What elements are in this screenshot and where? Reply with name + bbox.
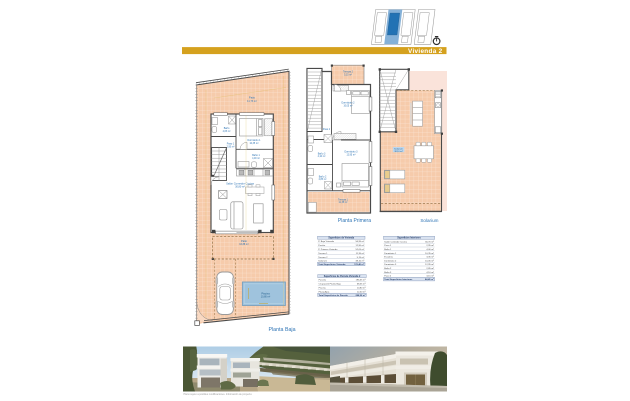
svg-text:Paso 2: Paso 2 — [323, 129, 331, 131]
svg-text:Paso 1: Paso 1 — [384, 245, 392, 247]
svg-text:12,95 m²: 12,95 m² — [346, 153, 355, 156]
svg-text:Porche: Porche — [318, 244, 326, 247]
svg-text:P. Primera Vivienda: P. Primera Vivienda — [318, 248, 338, 251]
svg-text:Parcela: Parcela — [319, 279, 327, 282]
svg-text:4,00 m²: 4,00 m² — [252, 157, 260, 160]
svg-text:68,55 m²: 68,55 m² — [357, 283, 366, 286]
svg-text:10,80 m²: 10,80 m² — [357, 287, 366, 290]
svg-text:10,05 m²: 10,05 m² — [425, 259, 434, 262]
svg-text:Total Superficies Interiores: Total Superficies Interiores — [384, 278, 413, 281]
svg-text:30,70 m²: 30,70 m² — [425, 240, 434, 243]
svg-text:Piscina: Piscina — [319, 288, 327, 290]
svg-text:84,45 m²: 84,45 m² — [425, 278, 434, 281]
svg-text:Superficies Interiores: Superficies Interiores — [397, 237, 421, 240]
svg-text:Dormitorio 3: Dormitorio 3 — [384, 263, 397, 266]
svg-text:Total Superficies de Parcela: Total Superficies de Parcela — [319, 294, 349, 297]
svg-text:3,35 m²: 3,35 m² — [426, 256, 434, 259]
svg-text:Solarium: Solarium — [420, 218, 438, 223]
svg-text:10,35 m²: 10,35 m² — [425, 252, 434, 255]
svg-text:56,95 m²: 56,95 m² — [356, 240, 365, 243]
svg-text:Baño: Baño — [224, 127, 230, 130]
svg-text:4,10 m²: 4,10 m² — [318, 155, 326, 158]
svg-text:Baño 2: Baño 2 — [319, 175, 327, 178]
svg-text:Terraza 1: Terraza 1 — [318, 252, 328, 255]
svg-text:4,05 m²: 4,05 m² — [223, 130, 231, 133]
svg-text:2,85 m²: 2,85 m² — [426, 267, 434, 270]
svg-text:Planta Baja: Planta Baja — [268, 327, 295, 333]
svg-text:10,35 m²: 10,35 m² — [249, 142, 258, 145]
svg-text:Escalera: Escalera — [384, 256, 393, 259]
svg-text:5,15 m²: 5,15 m² — [357, 256, 365, 259]
svg-text:Terraza 2: Terraza 2 — [343, 71, 354, 74]
svg-text:52,05 m²: 52,05 m² — [356, 248, 365, 251]
svg-text:Planta Primera: Planta Primera — [338, 218, 371, 224]
svg-text:3,15 m²: 3,15 m² — [426, 275, 434, 278]
svg-text:Paso 1: Paso 1 — [227, 143, 235, 146]
svg-text:Superficies de Parcela Viviend: Superficies de Parcela Vivienda 2 — [324, 276, 361, 278]
svg-text:11,35 m²: 11,35 m² — [356, 252, 365, 255]
svg-text:Terraza 2: Terraza 2 — [318, 256, 328, 259]
svg-text:Baño 3: Baño 3 — [384, 271, 392, 274]
svg-text:12,90 m²: 12,90 m² — [356, 244, 365, 247]
svg-text:16,88 m²: 16,88 m² — [239, 243, 249, 246]
svg-text:Ocupación Planta Baja: Ocupación Planta Baja — [319, 283, 342, 286]
svg-text:Dormitorio 3: Dormitorio 3 — [344, 151, 358, 154]
svg-text:38,10 m²: 38,10 m² — [394, 150, 403, 153]
svg-text:176,40 m²: 176,40 m² — [354, 263, 364, 266]
svg-text:Dormitorio 1: Dormitorio 1 — [384, 252, 397, 255]
svg-text:Terraza 1: Terraza 1 — [338, 198, 349, 201]
svg-text:Vivienda 2: Vivienda 2 — [408, 48, 443, 55]
svg-text:10,80 m²: 10,80 m² — [261, 296, 271, 299]
svg-text:Baño 1: Baño 1 — [384, 248, 392, 251]
svg-text:4,10 m²: 4,10 m² — [426, 271, 434, 274]
svg-text:Superficies de Vivienda: Superficies de Vivienda — [328, 238, 354, 240]
svg-text:4,00 m²: 4,00 m² — [426, 248, 434, 251]
svg-text:30,80 m²: 30,80 m² — [235, 186, 245, 189]
svg-text:5,15 m²: 5,15 m² — [344, 73, 352, 76]
svg-text:2,85 m²: 2,85 m² — [319, 178, 327, 181]
svg-text:196,35 m²: 196,35 m² — [356, 279, 366, 282]
svg-text:288,20 m²: 288,20 m² — [356, 294, 366, 297]
svg-text:12,50 m²: 12,50 m² — [357, 290, 366, 293]
svg-text:Salón Comedor Cocina: Salón Comedor Cocina — [384, 240, 407, 243]
svg-text:11,73 m²: 11,73 m² — [247, 100, 257, 103]
svg-text:Baño 1: Baño 1 — [252, 154, 260, 157]
svg-text:2,95 m²: 2,95 m² — [227, 145, 235, 148]
svg-text:10,05 m²: 10,05 m² — [343, 104, 352, 107]
svg-text:Dormitorio 1: Dormitorio 1 — [247, 139, 261, 142]
svg-text:Dormitorio 2: Dormitorio 2 — [384, 259, 397, 262]
svg-text:Total Superficies Vivienda: Total Superficies Vivienda — [318, 263, 346, 266]
svg-text:Plaza Apar.: Plaza Apar. — [319, 290, 330, 293]
svg-text:12,95 m²: 12,95 m² — [425, 263, 434, 266]
svg-text:11,35 m²: 11,35 m² — [339, 201, 348, 204]
svg-text:P. Baja Vivienda: P. Baja Vivienda — [318, 241, 335, 243]
svg-text:Dormitorio 2: Dormitorio 2 — [341, 102, 355, 105]
svg-text:Baño 3: Baño 3 — [318, 152, 326, 155]
svg-text:2,95 m²: 2,95 m² — [426, 244, 434, 247]
svg-text:Plano sujeto a posibles modifi: Plano sujeto a posibles modificaciones. … — [184, 393, 253, 396]
svg-text:Baño 2: Baño 2 — [384, 267, 392, 270]
